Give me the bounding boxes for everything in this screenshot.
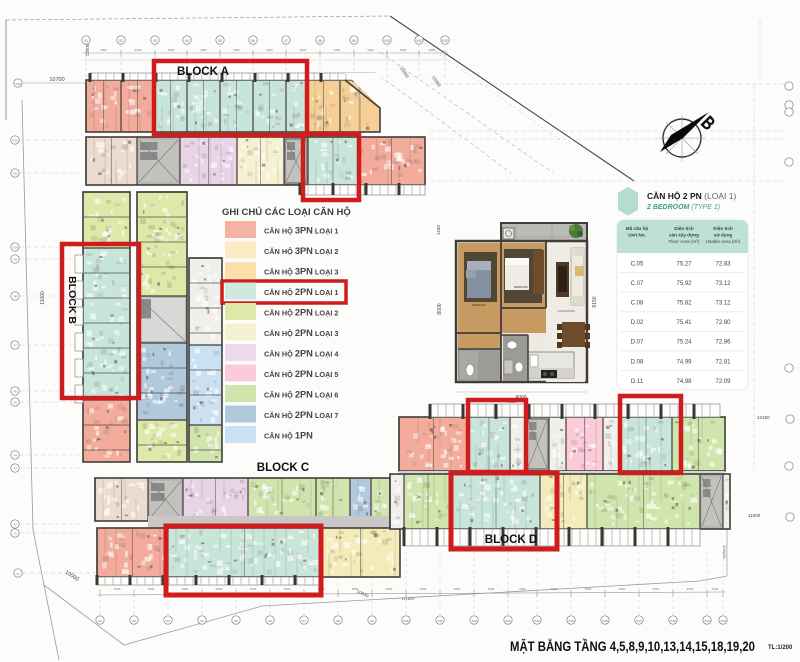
svg-text:1150: 1150 bbox=[436, 225, 441, 235]
svg-text:4500: 4500 bbox=[619, 587, 626, 591]
svg-text:Y8: Y8 bbox=[13, 295, 17, 299]
svg-text:X6: X6 bbox=[268, 619, 272, 623]
svg-text:4000: 4000 bbox=[400, 48, 407, 52]
svg-text:4000: 4000 bbox=[429, 48, 436, 52]
svg-text:CĂN HỘ 2PN LOẠI 2: CĂN HỘ 2PN LOẠI 2 bbox=[264, 308, 338, 318]
svg-text:4500: 4500 bbox=[585, 587, 592, 591]
svg-text:D.07: D.07 bbox=[631, 340, 644, 346]
svg-text:X7: X7 bbox=[284, 39, 288, 43]
svg-text:sử dụng: sử dụng bbox=[714, 233, 733, 238]
svg-text:X1: X1 bbox=[84, 39, 88, 43]
svg-text:Y7: Y7 bbox=[13, 344, 17, 348]
svg-text:CĂN HỘ 1PN: CĂN HỘ 1PN bbox=[264, 431, 313, 441]
svg-text:Diện tích: Diện tích bbox=[674, 226, 694, 231]
svg-text:C.05: C.05 bbox=[631, 261, 644, 267]
svg-text:BLOCK D: BLOCK D bbox=[485, 534, 537, 546]
svg-text:X15: X15 bbox=[568, 619, 574, 623]
svg-text:X8: X8 bbox=[336, 619, 340, 623]
svg-text:X19: X19 bbox=[704, 619, 710, 623]
svg-text:4500: 4500 bbox=[216, 587, 223, 591]
svg-text:Y3: Y3 bbox=[13, 467, 17, 471]
svg-text:73.12: 73.12 bbox=[715, 281, 731, 287]
svg-text:X5: X5 bbox=[234, 619, 238, 623]
svg-text:CĂN HỘ 3PN LOẠI 1: CĂN HỘ 3PN LOẠI 1 bbox=[264, 226, 338, 236]
svg-text:CĂN HỘ 3PN LOẠI 2: CĂN HỘ 3PN LOẠI 2 bbox=[264, 246, 338, 256]
svg-text:2 BEDROOM (TYPE 1): 2 BEDROOM (TYPE 1) bbox=[646, 204, 720, 211]
svg-text:4500: 4500 bbox=[114, 587, 121, 591]
svg-text:X3: X3 bbox=[153, 39, 157, 43]
svg-text:BLOCK C: BLOCK C bbox=[257, 462, 309, 474]
svg-text:X7: X7 bbox=[302, 619, 306, 623]
svg-text:X4: X4 bbox=[185, 39, 189, 43]
svg-text:BEDROOM: BEDROOM bbox=[514, 285, 527, 289]
svg-text:X5: X5 bbox=[218, 39, 222, 43]
svg-text:4000: 4000 bbox=[367, 48, 374, 52]
svg-text:4000: 4000 bbox=[300, 48, 307, 52]
svg-text:Y10: Y10 bbox=[12, 246, 18, 250]
svg-text:X16: X16 bbox=[602, 619, 608, 623]
svg-text:D.02: D.02 bbox=[631, 320, 644, 326]
svg-text:72.09: 72.09 bbox=[715, 379, 731, 385]
svg-text:CĂN HỘ 3PN LOẠI 3: CĂN HỘ 3PN LOẠI 3 bbox=[264, 267, 338, 277]
svg-text:111620: 111620 bbox=[402, 596, 416, 601]
svg-text:X9: X9 bbox=[370, 619, 374, 623]
svg-text:8000: 8000 bbox=[437, 303, 443, 314]
svg-text:75.41: 75.41 bbox=[676, 320, 692, 326]
svg-text:Usable Area (m²): Usable Area (m²) bbox=[706, 239, 741, 244]
svg-text:4500: 4500 bbox=[148, 587, 155, 591]
svg-text:4000: 4000 bbox=[135, 48, 142, 52]
svg-text:GHI CHÚ CÁC LOẠI CĂN HỘ: GHI CHÚ CÁC LOẠI CĂN HỘ bbox=[222, 206, 351, 218]
svg-text:9150: 9150 bbox=[592, 296, 598, 307]
svg-text:4000: 4000 bbox=[100, 48, 107, 52]
svg-text:4000: 4000 bbox=[168, 48, 175, 52]
svg-text:12150: 12150 bbox=[757, 415, 770, 420]
svg-text:CĂN HỘ 2PN LOẠI 7: CĂN HỘ 2PN LOẠI 7 bbox=[264, 410, 338, 420]
svg-text:X11: X11 bbox=[416, 39, 422, 43]
svg-text:BEDROOM: BEDROOM bbox=[472, 303, 485, 307]
svg-text:X2: X2 bbox=[132, 619, 136, 623]
svg-text:X1: X1 bbox=[98, 619, 102, 623]
svg-text:D.08: D.08 bbox=[631, 359, 644, 365]
svg-text:4500: 4500 bbox=[420, 587, 427, 591]
svg-text:100000: 100000 bbox=[722, 545, 727, 559]
svg-text:10700: 10700 bbox=[49, 77, 64, 83]
svg-text:CĂN HỘ 2PN LOẠI 1: CĂN HỘ 2PN LOẠI 1 bbox=[264, 287, 338, 297]
svg-text:X12: X12 bbox=[442, 39, 448, 43]
svg-text:74.99: 74.99 bbox=[676, 359, 692, 365]
svg-text:4500: 4500 bbox=[488, 587, 495, 591]
svg-text:X4: X4 bbox=[200, 619, 204, 623]
svg-text:Y9: Y9 bbox=[13, 258, 17, 262]
svg-text:75.82: 75.82 bbox=[676, 301, 692, 307]
svg-text:MẶT BẰNG TẦNG 4,5,8,9,10,13,14: MẶT BẰNG TẦNG 4,5,8,9,10,13,14,15,18,19,… bbox=[510, 639, 755, 654]
svg-text:Y12: Y12 bbox=[12, 139, 18, 143]
svg-text:X12: X12 bbox=[471, 619, 477, 623]
svg-text:4000: 4000 bbox=[334, 48, 341, 52]
svg-text:TL:1/200: TL:1/200 bbox=[768, 645, 793, 651]
svg-text:C.07: C.07 bbox=[631, 281, 644, 287]
svg-text:4500: 4500 bbox=[653, 587, 660, 591]
svg-text:D.11: D.11 bbox=[631, 379, 644, 385]
svg-text:Y5: Y5 bbox=[13, 401, 17, 405]
svg-text:4500: 4500 bbox=[687, 587, 694, 591]
svg-text:X10: X10 bbox=[384, 39, 390, 43]
svg-text:4500: 4500 bbox=[386, 587, 393, 591]
svg-text:75.24: 75.24 bbox=[676, 340, 692, 346]
svg-text:X9: X9 bbox=[352, 39, 356, 43]
svg-text:72.80: 72.80 bbox=[715, 320, 731, 326]
svg-text:X6: X6 bbox=[251, 39, 255, 43]
svg-text:74.98: 74.98 bbox=[676, 379, 692, 385]
svg-text:Y11: Y11 bbox=[12, 172, 17, 176]
svg-text:BLOCK A: BLOCK A bbox=[177, 66, 229, 78]
svg-text:Y1: Y1 bbox=[13, 532, 17, 536]
svg-text:4500: 4500 bbox=[519, 587, 526, 591]
svg-text:X10: X10 bbox=[403, 619, 409, 623]
svg-text:CĂN HỘ 2PN LOẠI 5: CĂN HỘ 2PN LOẠI 5 bbox=[264, 369, 338, 379]
svg-text:72.83: 72.83 bbox=[715, 261, 731, 267]
svg-text:X3: X3 bbox=[166, 619, 170, 623]
svg-text:4500: 4500 bbox=[454, 587, 461, 591]
svg-text:BLOCK B: BLOCK B bbox=[66, 276, 78, 324]
svg-text:Diện tích: Diện tích bbox=[713, 226, 733, 231]
svg-text:X8: X8 bbox=[318, 39, 322, 43]
svg-text:4000: 4000 bbox=[233, 48, 240, 52]
svg-text:4000: 4000 bbox=[266, 48, 273, 52]
svg-text:X2: X2 bbox=[119, 39, 123, 43]
svg-text:75.27: 75.27 bbox=[676, 261, 692, 267]
svg-text:Floor Area (m²): Floor Area (m²) bbox=[669, 239, 700, 244]
svg-text:73.12: 73.12 bbox=[715, 301, 731, 307]
svg-text:CĂN HỘ 2PN LOẠI 4: CĂN HỘ 2PN LOẠI 4 bbox=[264, 349, 339, 359]
svg-text:Y13: Y13 bbox=[15, 82, 21, 86]
svg-text:Y6: Y6 bbox=[13, 390, 17, 394]
svg-text:CĂN HỘ 2 PN (LOẠI 1): CĂN HỘ 2 PN (LOẠI 1) bbox=[647, 190, 736, 201]
svg-text:X17: X17 bbox=[636, 619, 642, 623]
svg-text:75.92: 75.92 bbox=[676, 281, 692, 287]
svg-text:CĂN HỘ 2PN LOẠI 6: CĂN HỘ 2PN LOẠI 6 bbox=[264, 390, 338, 400]
svg-text:4500: 4500 bbox=[182, 587, 189, 591]
svg-text:11000: 11000 bbox=[748, 513, 761, 518]
svg-text:11000: 11000 bbox=[40, 291, 46, 305]
svg-text:12000: 12000 bbox=[85, 43, 90, 56]
svg-text:Y4: Y4 bbox=[13, 454, 17, 458]
svg-text:Y2: Y2 bbox=[13, 523, 17, 527]
svg-text:X11: X11 bbox=[437, 619, 442, 623]
svg-text:72.81: 72.81 bbox=[715, 359, 731, 365]
svg-text:X20: X20 bbox=[720, 619, 726, 623]
svg-text:4500: 4500 bbox=[284, 587, 291, 591]
svg-text:LIVING ROOM: LIVING ROOM bbox=[557, 309, 574, 313]
svg-text:Mã căn hộ: Mã căn hộ bbox=[626, 226, 649, 231]
svg-text:sàn xây dựng: sàn xây dựng bbox=[669, 233, 699, 238]
svg-text:Y1: Y1 bbox=[16, 572, 20, 576]
svg-text:X14: X14 bbox=[534, 619, 540, 623]
svg-text:4500: 4500 bbox=[250, 587, 257, 591]
svg-text:4500: 4500 bbox=[712, 587, 719, 591]
svg-text:72.86: 72.86 bbox=[715, 340, 731, 346]
svg-text:Unit No.: Unit No. bbox=[628, 233, 646, 238]
svg-text:C.08: C.08 bbox=[631, 301, 644, 307]
svg-text:CĂN HỘ 2PN LOẠI 3: CĂN HỘ 2PN LOẠI 3 bbox=[264, 328, 338, 338]
svg-text:4000: 4000 bbox=[200, 48, 207, 52]
svg-text:X18: X18 bbox=[670, 619, 676, 623]
svg-text:4500: 4500 bbox=[551, 587, 558, 591]
svg-text:X13: X13 bbox=[505, 619, 511, 623]
